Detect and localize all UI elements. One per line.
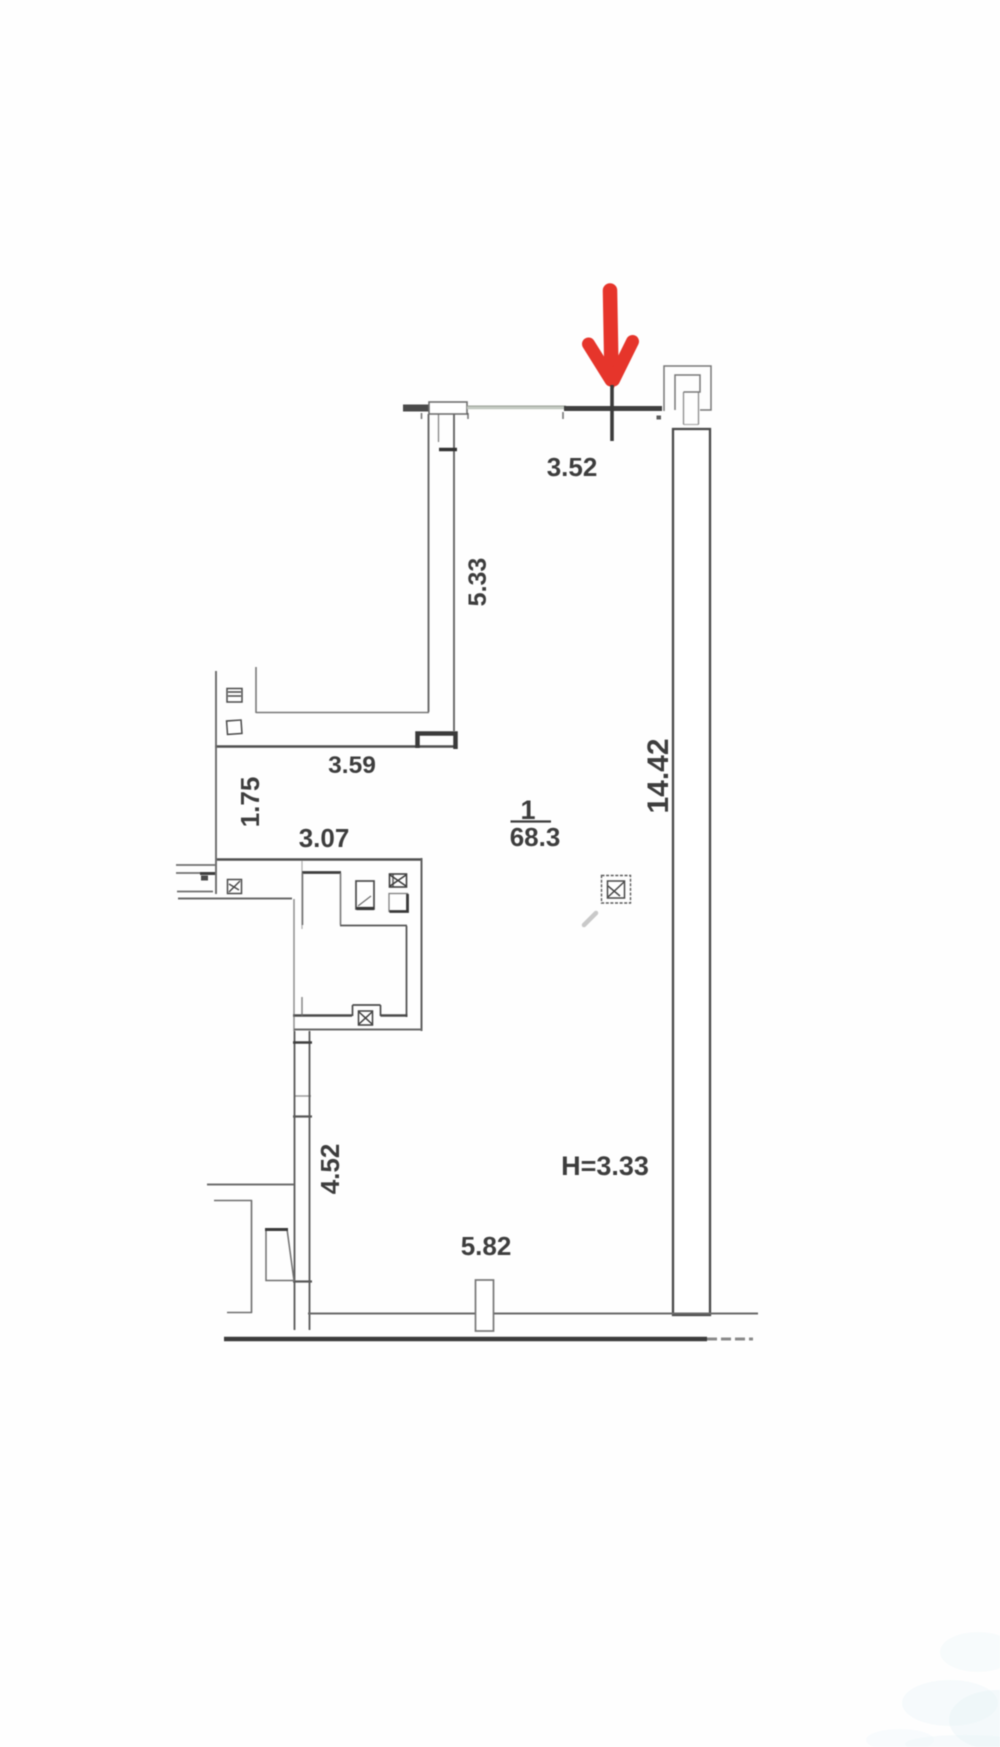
svg-text:3.59: 3.59 (328, 752, 376, 779)
svg-text:14.42: 14.42 (642, 738, 675, 813)
svg-text:3.52: 3.52 (547, 452, 598, 482)
svg-text:4.52: 4.52 (315, 1144, 345, 1195)
svg-text:68.3: 68.3 (510, 822, 561, 852)
svg-text:3.07: 3.07 (299, 823, 350, 853)
svg-text:5.33: 5.33 (464, 558, 492, 607)
svg-text:H=3.33: H=3.33 (561, 1151, 649, 1181)
svg-text:5.82: 5.82 (461, 1231, 512, 1261)
svg-text:1.75: 1.75 (235, 777, 265, 828)
